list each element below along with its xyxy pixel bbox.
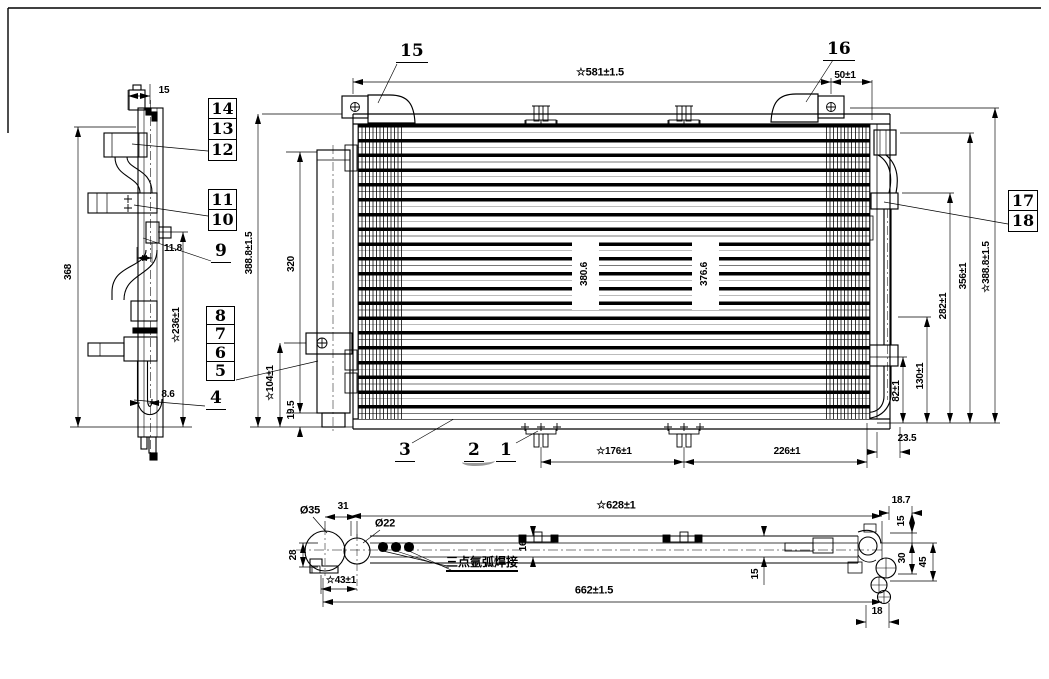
dim-front-clip-span: ☆176±1 [596,447,632,457]
dim-bottom-43: ☆43±1 [326,576,356,586]
callout-stack-8-7-6-5: 8 7 6 5 [206,307,235,381]
dim-bottom-d22: Ø22 [375,519,395,530]
callout-7: 7 [206,324,235,344]
weld-note: 三点氩弧焊接 [446,556,518,572]
callout-12: 12 [208,139,237,161]
dim-bottom-15-mid: 15 [751,569,761,580]
dim-front-right-82: 82±1 [892,380,902,401]
dim-front-bottom-offset: 19.5 [287,401,297,420]
dim-front-right-356: 356±1 [959,263,969,290]
callout-9: 9 [211,243,231,263]
dim-front-right-offset: 23.5 [898,434,917,444]
dim-core-height-a: 380.6 [580,262,590,286]
dim-bottom-right-45: 45 [919,557,929,568]
callout-13: 13 [208,118,237,140]
callout-1: 1 [496,442,516,462]
dim-bottom-16: 16 [519,541,529,552]
dim-side-star-height: ☆236±1 [172,307,182,343]
dim-bottom-right-30: 30 [898,553,908,564]
callout-11: 11 [208,189,237,211]
dim-front-drier-length: 320 [287,256,297,272]
fin-hatch-left [358,124,402,419]
callout-15: 15 [396,43,428,63]
dim-side-pipe-offset: 11.8 [164,244,182,254]
dim-bottom-right-187: 18.7 [892,496,911,506]
dim-front-right-282: 282±1 [939,293,949,320]
dim-front-clip-right: 226±1 [774,447,801,457]
callout-17: 17 [1008,190,1038,212]
dim-front-bracket-offset: 50±1 [834,71,855,81]
dim-side-width: 15 [159,86,170,96]
callout-stack-11-10: 11 10 [208,190,237,231]
dim-side-height: 368 [64,264,74,280]
callout-4: 4 [206,390,226,410]
dim-front-drier-clamp: ☆104±1 [266,365,276,401]
dim-core-height-b: 376.6 [700,262,710,286]
callout-8: 8 [206,306,235,326]
dim-front-height-right: ☆388.8±1.5 [982,241,992,292]
dim-front-right-130: 130±1 [916,363,926,390]
callout-16: 16 [823,41,855,61]
callout-14: 14 [208,98,237,120]
fin-hatch-right [826,124,870,419]
drawing-sheet: 15 368 11.8 ☆236±1 8.6 ☆581±1.5 50±1 388… [0,0,1049,679]
condenser-core-tubes [358,124,870,419]
callout-stack-14-13-12: 14 13 12 [208,99,237,161]
dim-bottom-d35: Ø35 [300,506,320,517]
dim-front-overall-width: ☆581±1.5 [576,68,624,79]
dim-bottom-31: 31 [338,502,349,512]
callout-6: 6 [206,343,235,363]
callout-18: 18 [1008,210,1038,232]
dim-front-height-left: 388.8±1.5 [245,232,255,275]
callout-10: 10 [208,209,237,231]
dim-side-bottom-offset: 8.6 [161,390,174,400]
dim-bottom-28: 28 [289,550,299,561]
dim-bottom-628: ☆628±1 [596,501,635,512]
dim-bottom-right-18: 18 [872,607,883,617]
dim-bottom-length: 662±1.5 [575,586,613,597]
callout-3: 3 [395,442,415,462]
dim-bottom-right-15: 15 [897,516,907,527]
callout-stack-17-18: 17 18 [1008,191,1038,232]
callout-5: 5 [206,361,235,381]
